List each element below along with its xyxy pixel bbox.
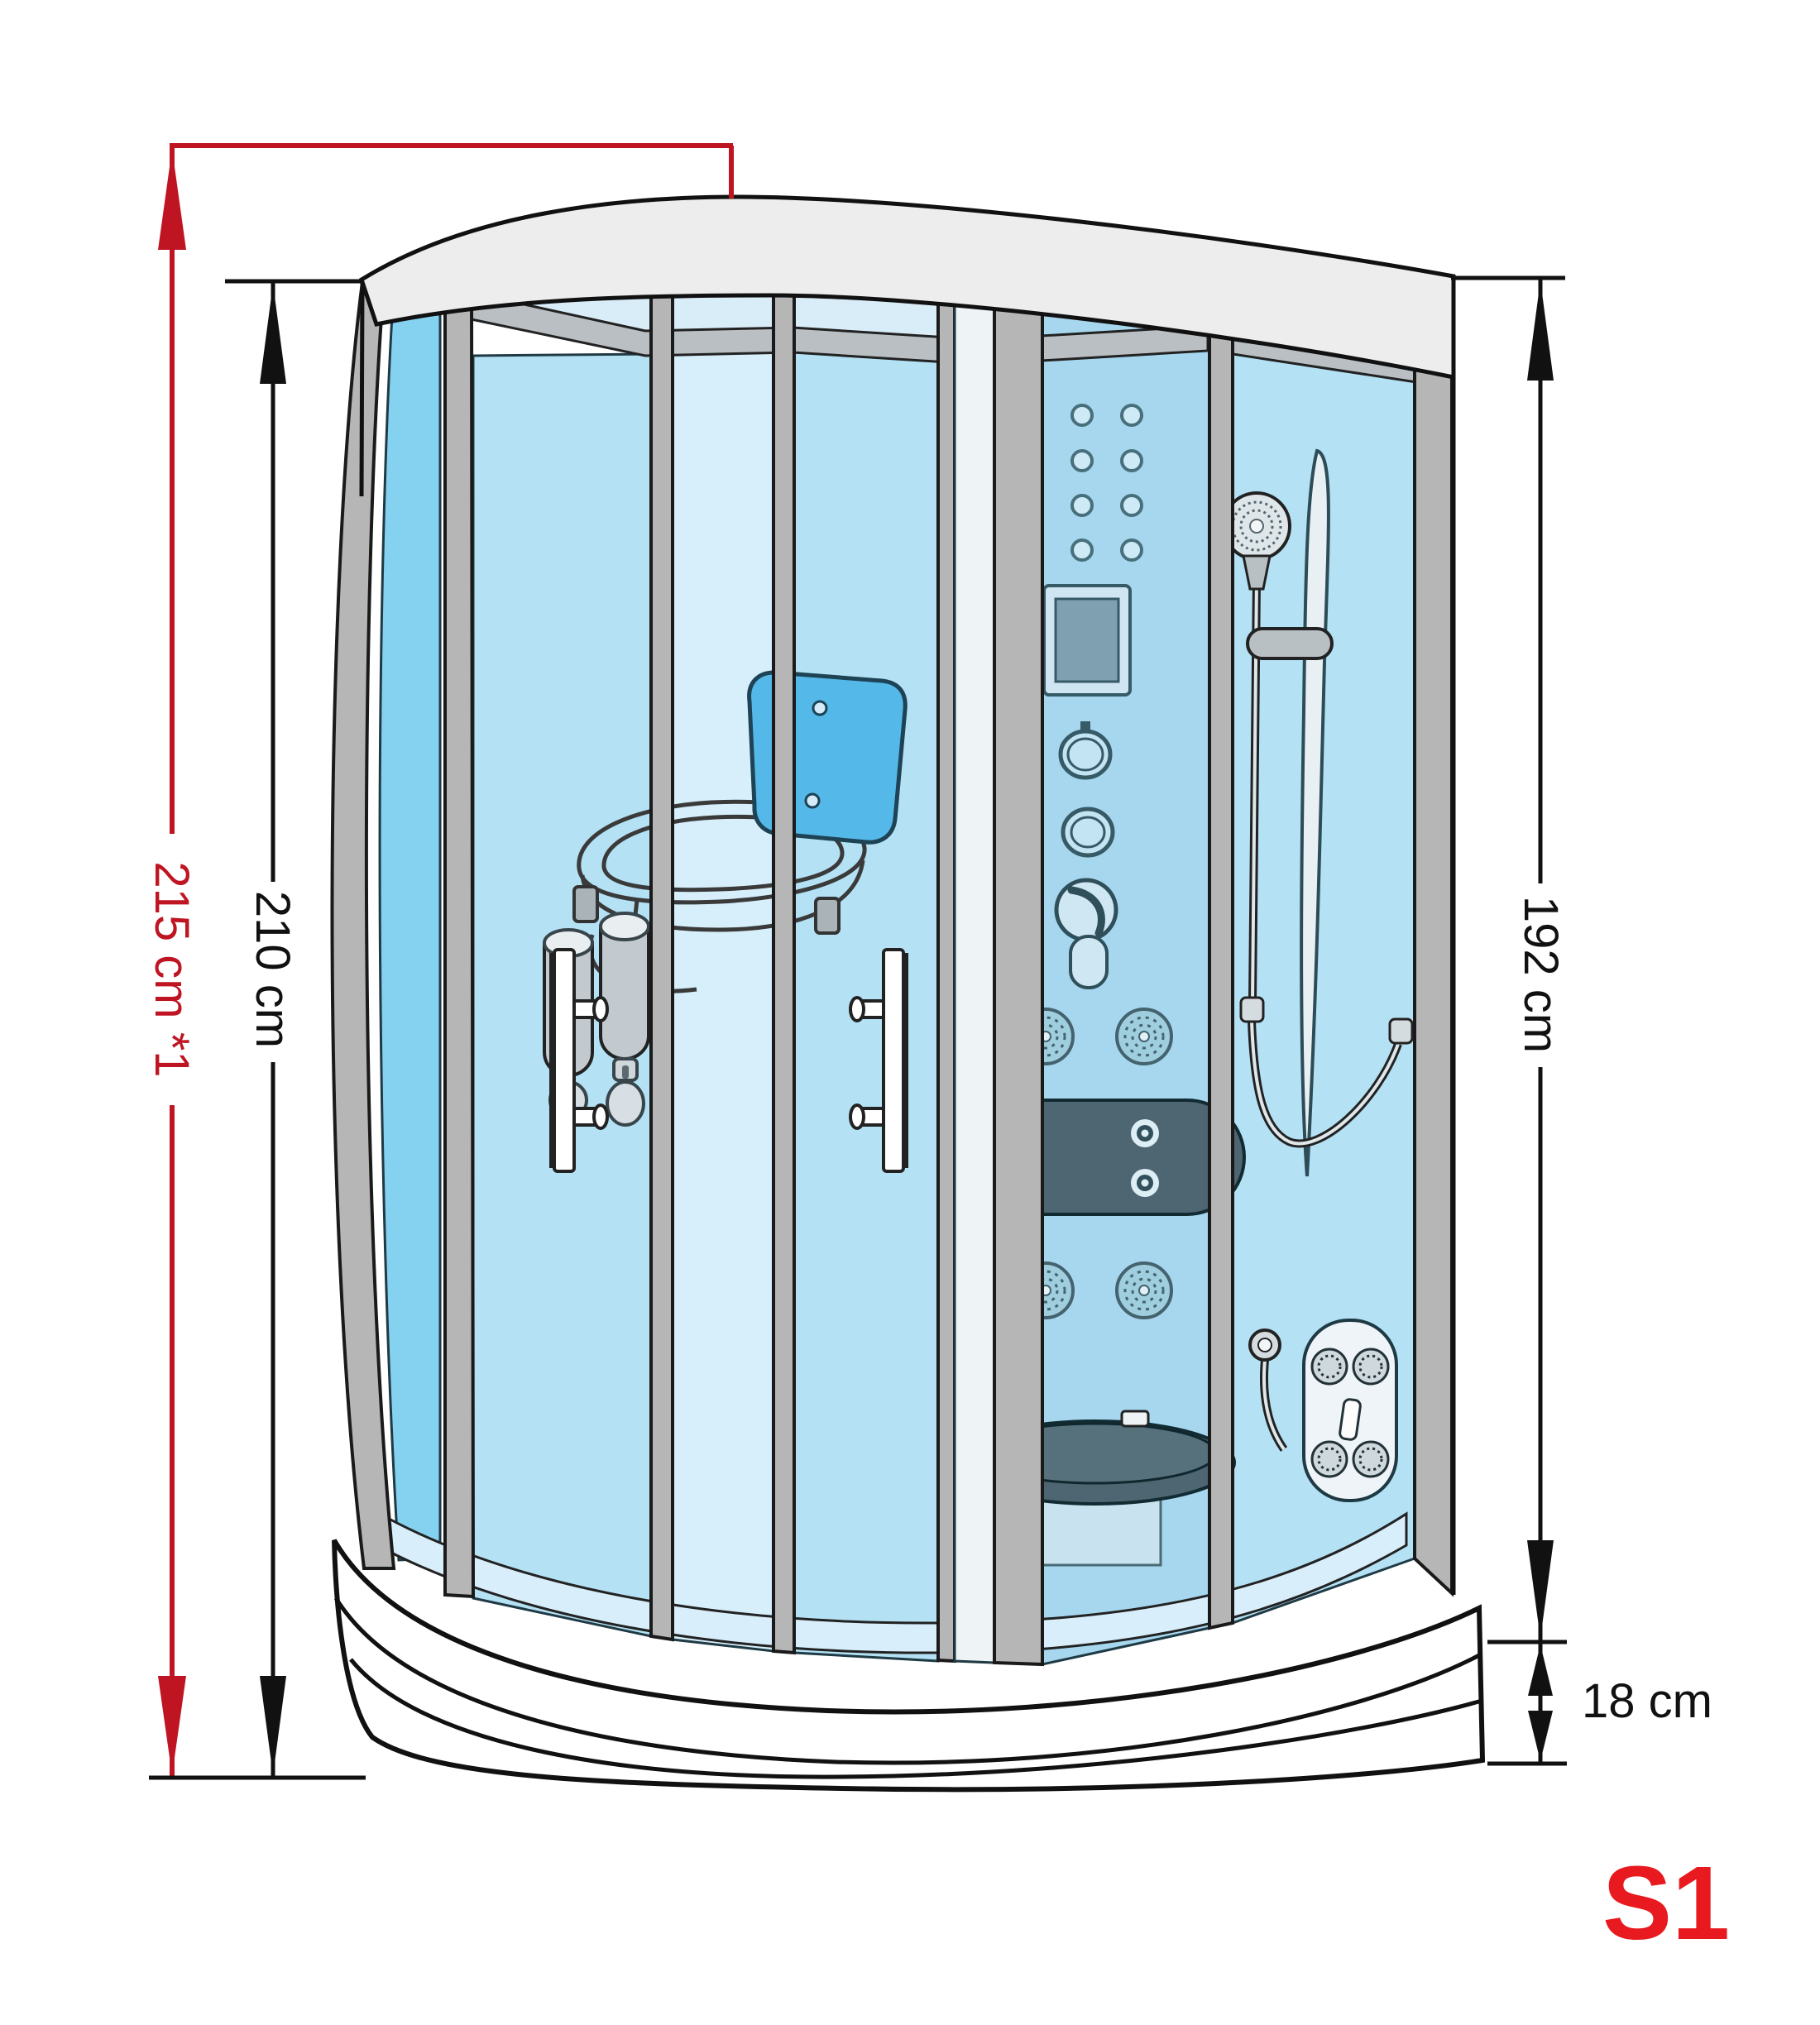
dimension-tray-height: 18 cm [1487,1642,1712,1764]
profile-right-corner [1415,349,1452,1593]
arrow-up-icon [260,284,286,384]
profile-4 [773,290,794,1653]
mirror-screw [813,701,826,715]
headrest-jet [1131,1169,1159,1197]
glass-door-right [794,308,938,1661]
seat-clip [1122,1411,1148,1426]
diverter-ring [1063,809,1113,855]
cabin-height-label: 210 cm [246,891,299,1048]
model-label: S1 [1602,1845,1730,1961]
profile-corner-center [994,290,1042,1664]
shelf-clip [574,887,597,922]
arrow-down-icon [1528,1711,1553,1761]
shower-cabin-diagram: 215 cm *1 210 cm 192 cm 18 cm S1 [0,0,1820,2025]
tray-height-label: 18 cm [1582,1674,1712,1728]
profile-5 [938,290,955,1661]
diagram-canvas: 215 cm *1 210 cm 192 cm 18 cm S1 [0,0,1820,2025]
profile-3 [651,291,673,1640]
headrest-jet [1131,1119,1159,1147]
glass-door-left [673,347,773,1651]
dimension-glass-height: 192 cm [1451,278,1568,1640]
shelf-clip [816,898,839,933]
arrow-up-icon [158,149,186,250]
arrow-up-icon [1527,280,1554,381]
glass-height-label: 192 cm [1514,896,1568,1053]
profile-7 [1209,313,1233,1628]
profile-2 [445,285,473,1597]
glass-return-panel [380,314,440,1560]
control-display [1044,586,1130,695]
arrow-down-icon [158,1676,186,1775]
control-panel [1304,1320,1396,1501]
cabin-left-edge [362,282,362,496]
total-height-label: 215 cm *1 [145,861,199,1077]
arrow-up-icon [1528,1644,1553,1696]
arrow-down-icon [260,1676,286,1775]
door-gap-strip [955,290,994,1663]
mirror-screw [806,794,819,807]
arrow-down-icon [1527,1540,1554,1639]
rail-slider [1248,629,1332,658]
